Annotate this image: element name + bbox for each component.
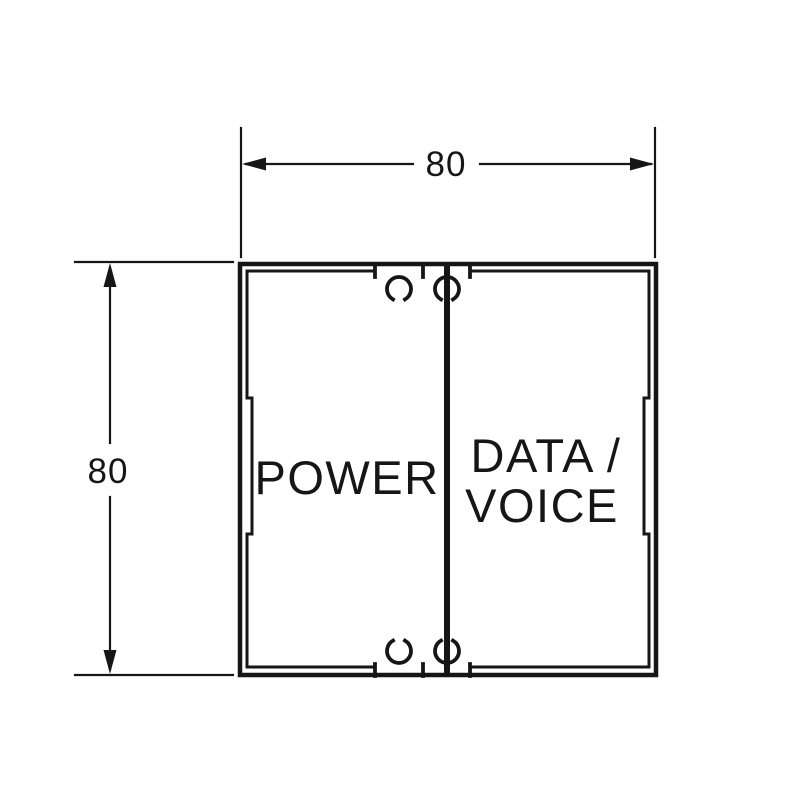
drawing-canvas: 80 80 POWER DATA / VOICE <box>0 0 800 800</box>
top-clip-stubs <box>375 265 470 277</box>
top-retaining-clips <box>375 265 470 299</box>
width-dim-arrow-left-icon <box>242 158 266 171</box>
height-dim-value: 80 <box>88 452 129 491</box>
height-dim-arrow-up-icon <box>104 263 117 287</box>
bottom-clip-left-ring <box>387 641 411 663</box>
dimension-arrows <box>104 158 655 675</box>
linework-group <box>75 128 656 676</box>
labels-group: 80 80 POWER DATA / VOICE <box>88 145 622 532</box>
left-compartment-label: POWER <box>254 451 439 504</box>
right-compartment-label-line1: DATA / <box>471 429 622 482</box>
width-dim-value: 80 <box>426 145 467 184</box>
height-dim-arrow-down-icon <box>104 650 117 674</box>
width-dim-arrow-right-icon <box>630 158 654 171</box>
bottom-retaining-clips <box>375 641 470 676</box>
top-clip-left-ring <box>387 277 411 299</box>
trunking-profile-drawing: 80 80 POWER DATA / VOICE <box>0 0 800 800</box>
right-compartment-label-line2: VOICE <box>465 479 619 532</box>
